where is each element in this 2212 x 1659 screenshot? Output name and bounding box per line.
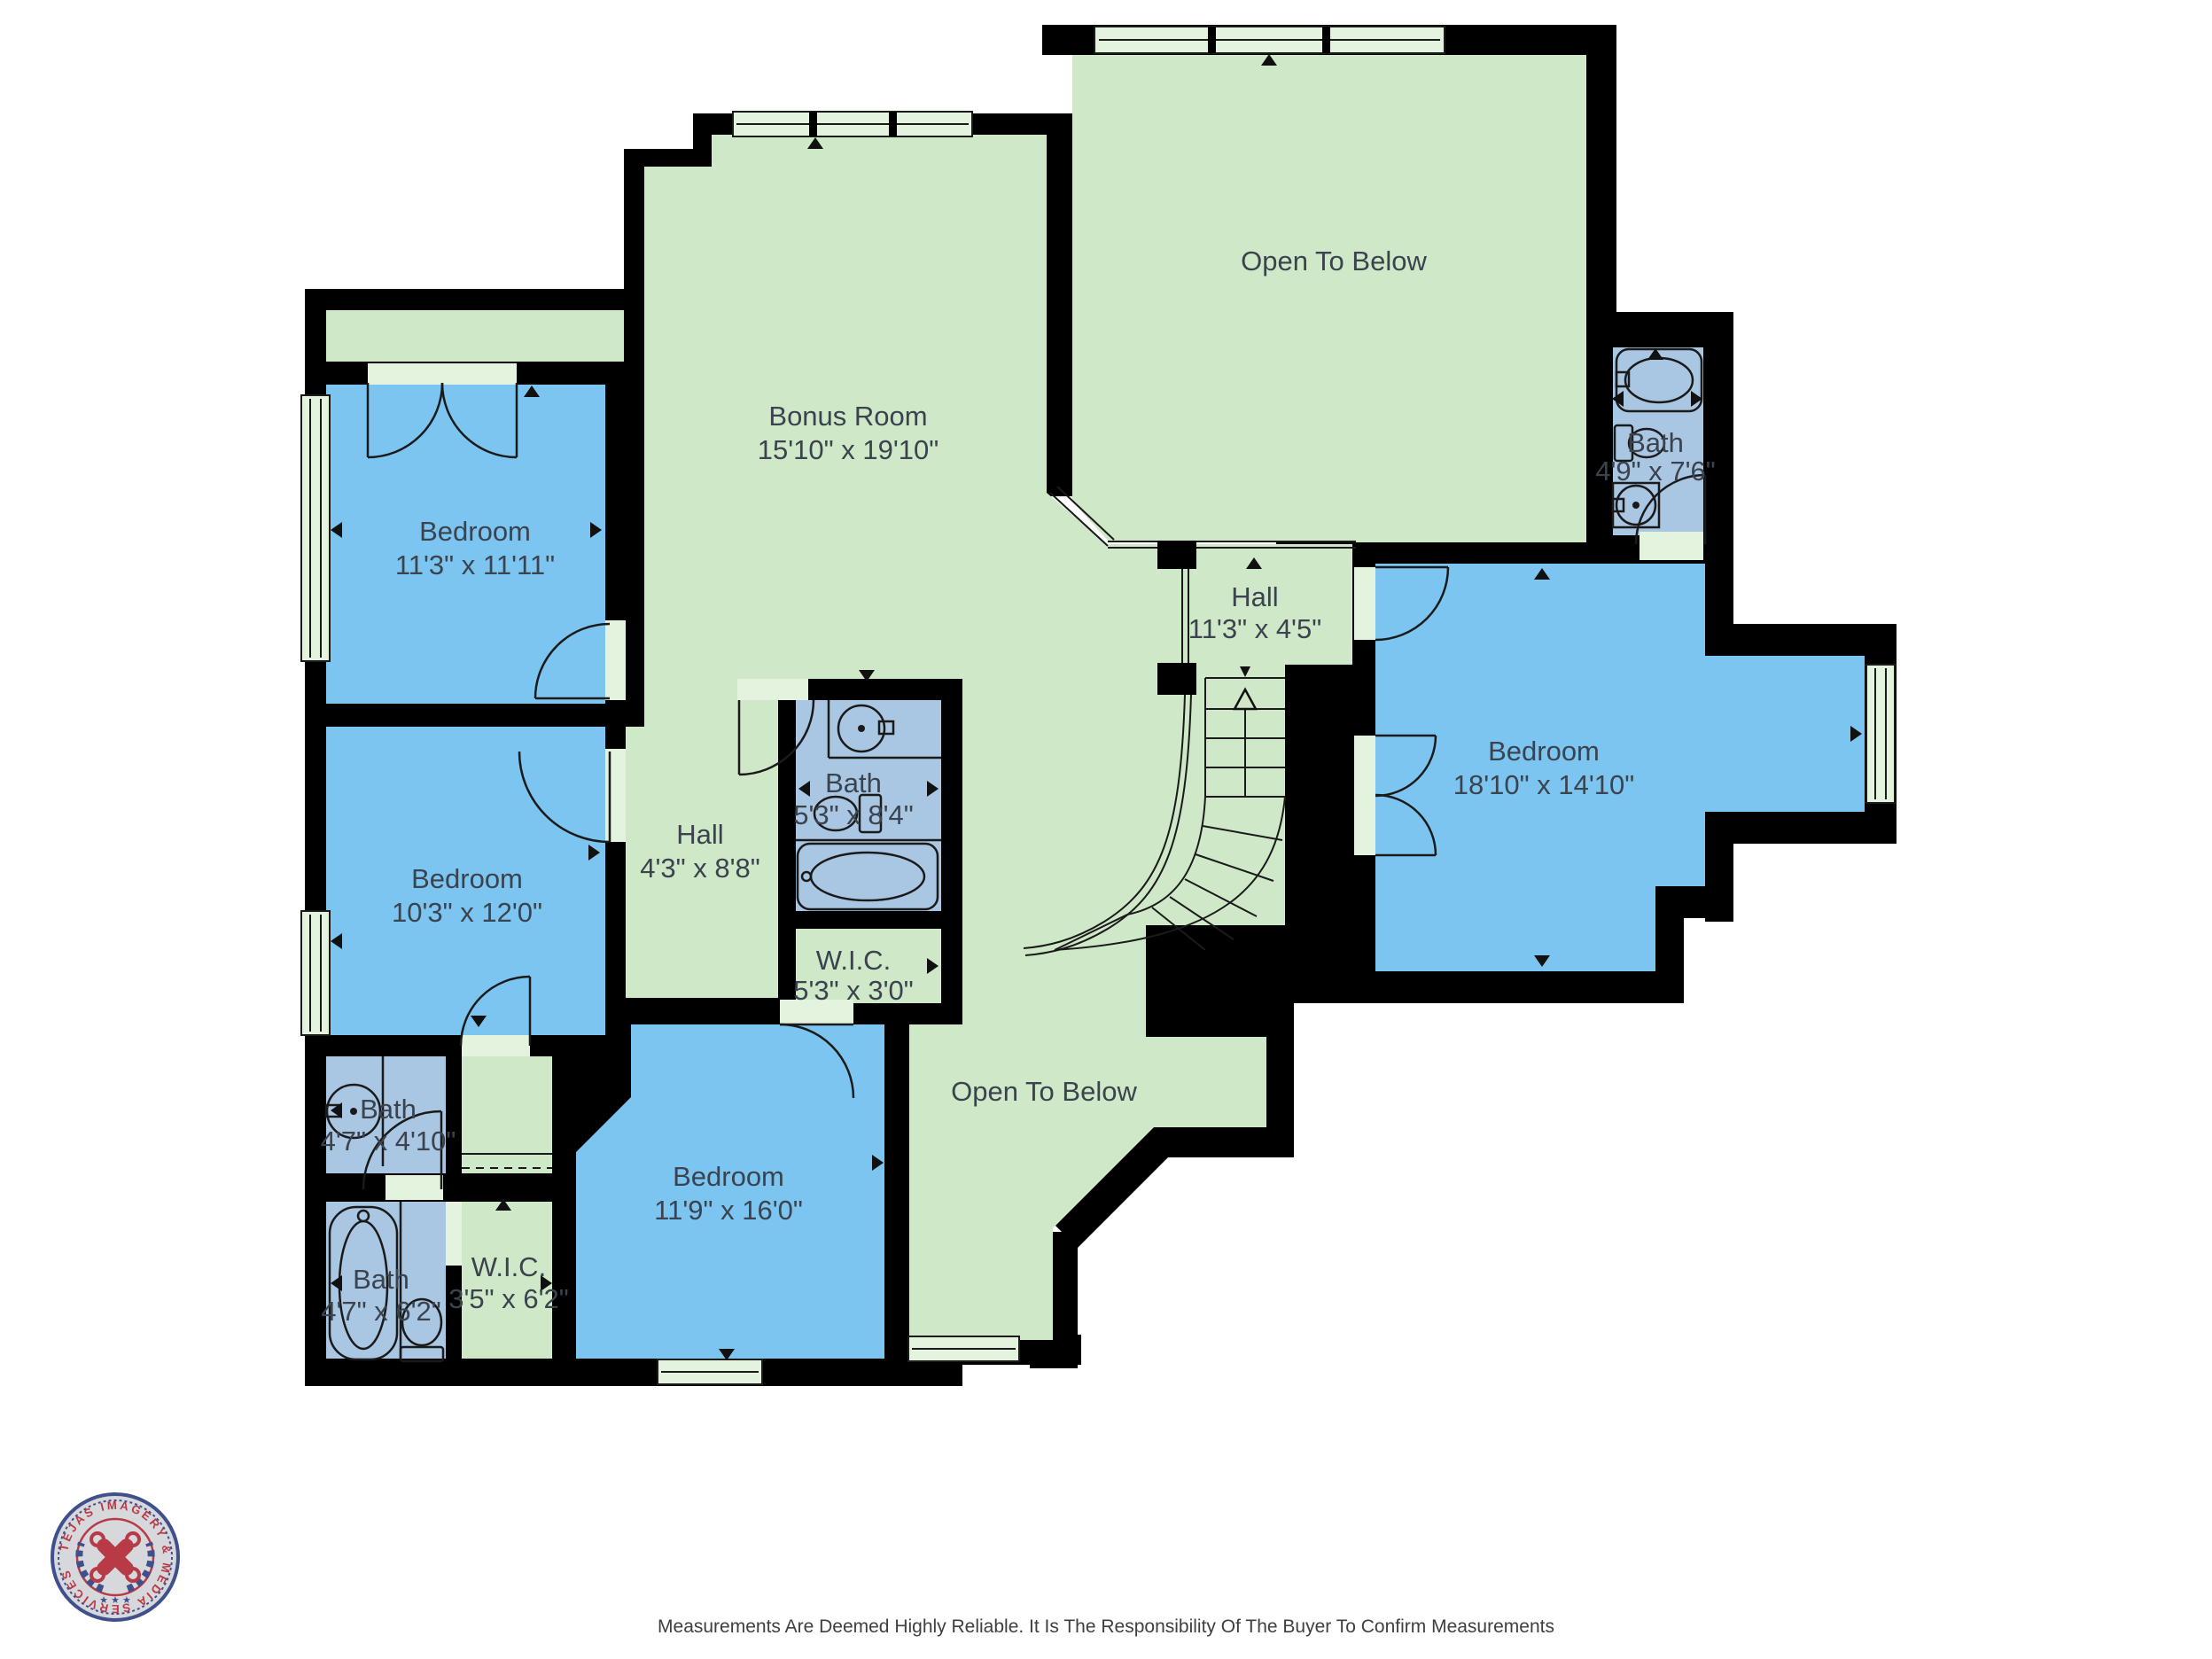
room-dims: 5'3" x 3'0": [793, 975, 914, 1006]
room-label: Hall: [1231, 581, 1278, 612]
room-dims: 5'3" x 8'4": [793, 799, 914, 830]
closet-mid-left: [462, 1056, 552, 1173]
room-label: Bath: [360, 1094, 417, 1125]
room-label: W.I.C.: [471, 1251, 546, 1282]
room-label: Hall: [676, 819, 723, 850]
room-label: Bedroom: [419, 516, 531, 547]
window: [1866, 665, 1895, 803]
room-label: Bath: [353, 1264, 409, 1295]
room-label: Bedroom: [1488, 736, 1600, 767]
floor-plan-drawing: Bonus Room 15'10" x 19'10" Open To Below…: [0, 0, 2212, 1659]
window: [301, 911, 330, 1035]
room-open-to-below-top: [1072, 55, 1586, 542]
room-label: Bath: [825, 767, 882, 798]
logo-stars: ★ ★ ★: [99, 1595, 131, 1606]
room-dims: 4'9" x 7'6": [1595, 456, 1716, 487]
window: [1094, 27, 1445, 53]
railing-post: [1157, 663, 1196, 695]
room-dims: 10'3" x 12'0": [392, 897, 542, 928]
room-dims: 4'7" x 4'10": [321, 1125, 456, 1157]
room-label: Open To Below: [1241, 245, 1427, 276]
window: [908, 1336, 1019, 1361]
closet-top-left: [326, 310, 624, 362]
logo: TEJAS IMAGERY & MEDIA SERVICES ★ ★ ★: [52, 1494, 178, 1620]
room-label: Bonus Room: [768, 401, 927, 432]
window: [658, 1359, 762, 1384]
window: [733, 112, 972, 136]
room-label: Bedroom: [411, 863, 523, 894]
room-label: Bedroom: [673, 1161, 784, 1192]
disclaimer: Measurements Are Deemed Highly Reliable.…: [658, 1616, 1554, 1637]
room-label: Bath: [1627, 427, 1684, 458]
room-label: W.I.C.: [816, 945, 891, 976]
room-dims: 18'10" x 14'10": [1453, 769, 1635, 800]
room-dims: 11'3" x 4'5": [1188, 613, 1321, 644]
room-dims: 11'9" x 16'0": [654, 1195, 803, 1226]
room-dims: 15'10" x 19'10": [758, 434, 939, 465]
room-dims: 4'3" x 8'8": [640, 853, 760, 884]
room-dims: 4'7" x 6'2": [321, 1296, 441, 1327]
window: [301, 395, 330, 661]
room-dims: 11'3" x 11'11": [395, 549, 555, 580]
floor-plan-page: Bonus Room 15'10" x 19'10" Open To Below…: [0, 0, 2212, 1659]
room-label: Open To Below: [951, 1076, 1137, 1107]
room-dims: 3'5" x 6'2": [448, 1283, 569, 1314]
railing-post: [1157, 541, 1196, 569]
